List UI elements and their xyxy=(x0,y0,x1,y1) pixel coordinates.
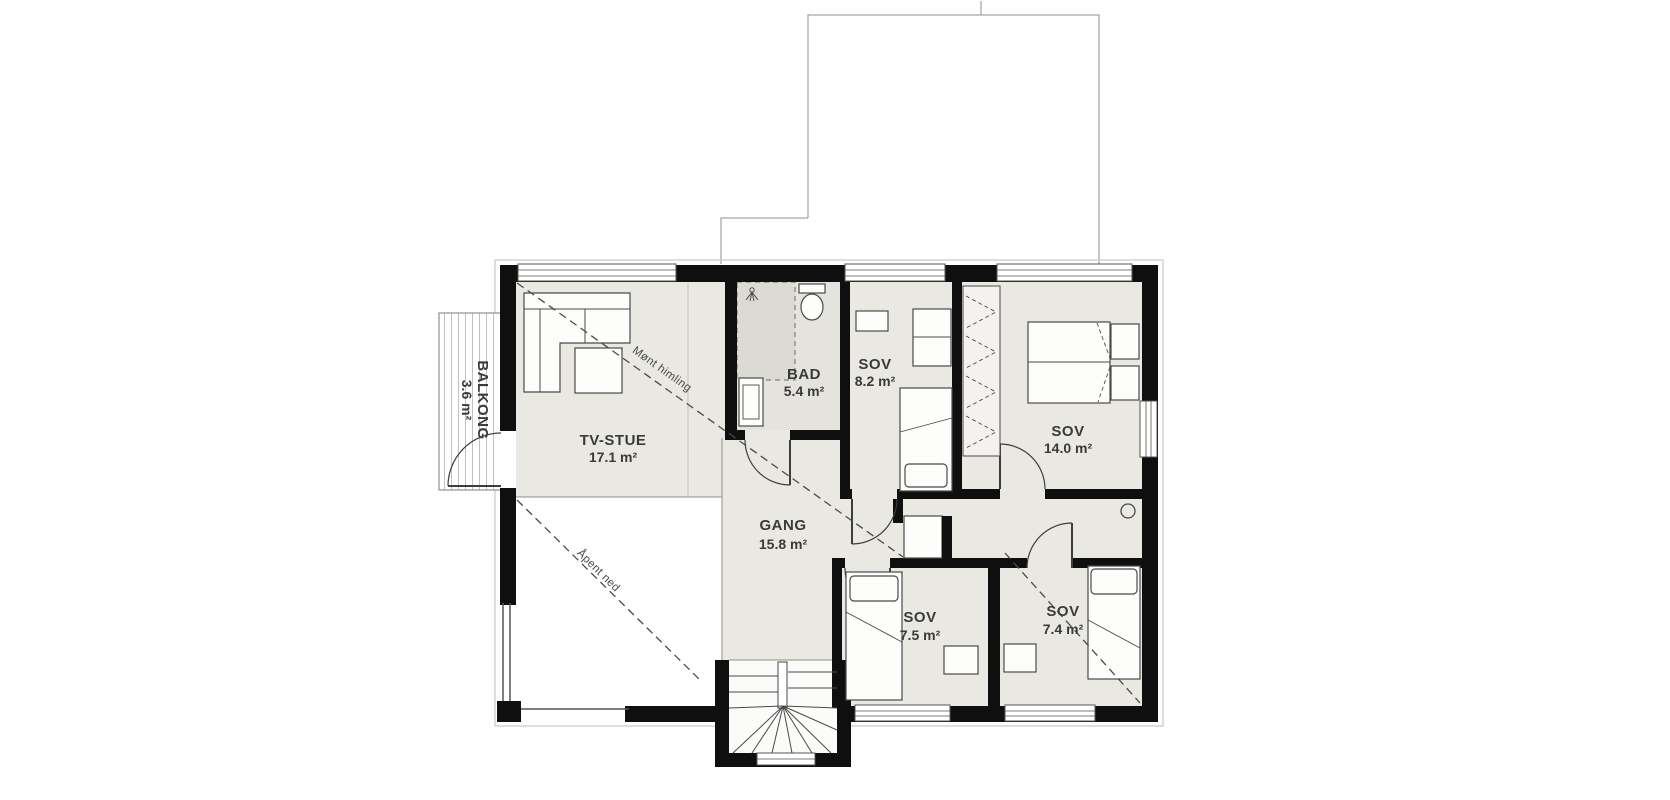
gang-label: GANG xyxy=(760,517,807,534)
balcony-label: BALKONG xyxy=(474,360,491,439)
bedroom-75-74-wall xyxy=(988,568,1000,708)
sov-140-area-label: 14.0 m² xyxy=(1044,440,1093,456)
tv-stue-bath-wall xyxy=(725,282,737,440)
open-below-line xyxy=(517,500,700,680)
floor-plan-drawing: BALKONG 3.6 m² xyxy=(0,0,1670,800)
balcony: BALKONG 3.6 m² xyxy=(439,313,503,490)
bed-symbol xyxy=(846,572,902,700)
sov-75-label: SOV xyxy=(903,609,936,626)
corridor-stub-wall-a xyxy=(893,499,903,523)
window xyxy=(997,264,1132,281)
roof-outline xyxy=(721,1,1099,264)
bath-door-opening xyxy=(745,430,790,440)
desk-symbol xyxy=(944,646,978,674)
window xyxy=(757,753,815,765)
sink-symbol xyxy=(739,378,763,426)
balcony-area-label: 3.6 m² xyxy=(459,380,475,421)
sov-75-area-label: 7.5 m² xyxy=(900,627,941,643)
open-below-annotation: Åpent ned xyxy=(574,547,622,595)
bedroom-82-west-wall xyxy=(840,282,850,499)
bedroom-75-west-wall xyxy=(832,558,842,708)
bedroom-75-door-opening xyxy=(845,558,890,568)
sov-82-label: SOV xyxy=(858,356,891,373)
bedroom-74-door-opening xyxy=(1027,558,1072,568)
gang-area-label: 15.8 m² xyxy=(759,536,808,552)
bed-symbol xyxy=(1088,566,1140,679)
wardrobe-bifold-symbol xyxy=(963,286,1000,456)
bed-symbol xyxy=(900,388,952,491)
window xyxy=(845,264,945,281)
window xyxy=(518,264,676,281)
desk-symbol xyxy=(1004,644,1036,672)
stair-bump-west-wall xyxy=(715,660,729,767)
floor-plan-page: BALKONG 3.6 m² xyxy=(0,0,1670,800)
corridor-stub-wall-b xyxy=(942,516,952,558)
sov-140-label: SOV xyxy=(1051,423,1084,440)
wardrobe-symbol xyxy=(913,309,951,366)
tv-stue-area-label: 17.1 m² xyxy=(589,449,638,465)
toilet-symbol xyxy=(799,284,825,320)
bedroom-140-door-opening xyxy=(1000,489,1045,499)
window xyxy=(1140,401,1157,457)
sov-74-area-label: 7.4 m² xyxy=(1043,621,1084,637)
desk-symbol xyxy=(856,311,888,331)
window xyxy=(1005,705,1095,721)
bad-label: BAD xyxy=(787,366,821,383)
bedroom-82-door-opening xyxy=(852,489,897,499)
south-wall-west xyxy=(625,706,715,722)
tv-stue-label: TV-STUE xyxy=(580,432,647,449)
sov-74-label: SOV xyxy=(1046,603,1079,620)
tv-stue-furniture xyxy=(524,293,630,393)
balcony-door-opening xyxy=(500,431,516,488)
bedroom-82-east-wall xyxy=(952,282,962,499)
sov-82-area-label: 8.2 m² xyxy=(855,373,896,389)
corner-post xyxy=(497,701,521,722)
window xyxy=(855,705,950,721)
coffee-table-symbol xyxy=(575,348,622,393)
hall-floor-arm xyxy=(832,499,1142,558)
bad-area-label: 5.4 m² xyxy=(784,383,825,399)
corridor-wardrobe xyxy=(904,516,942,558)
